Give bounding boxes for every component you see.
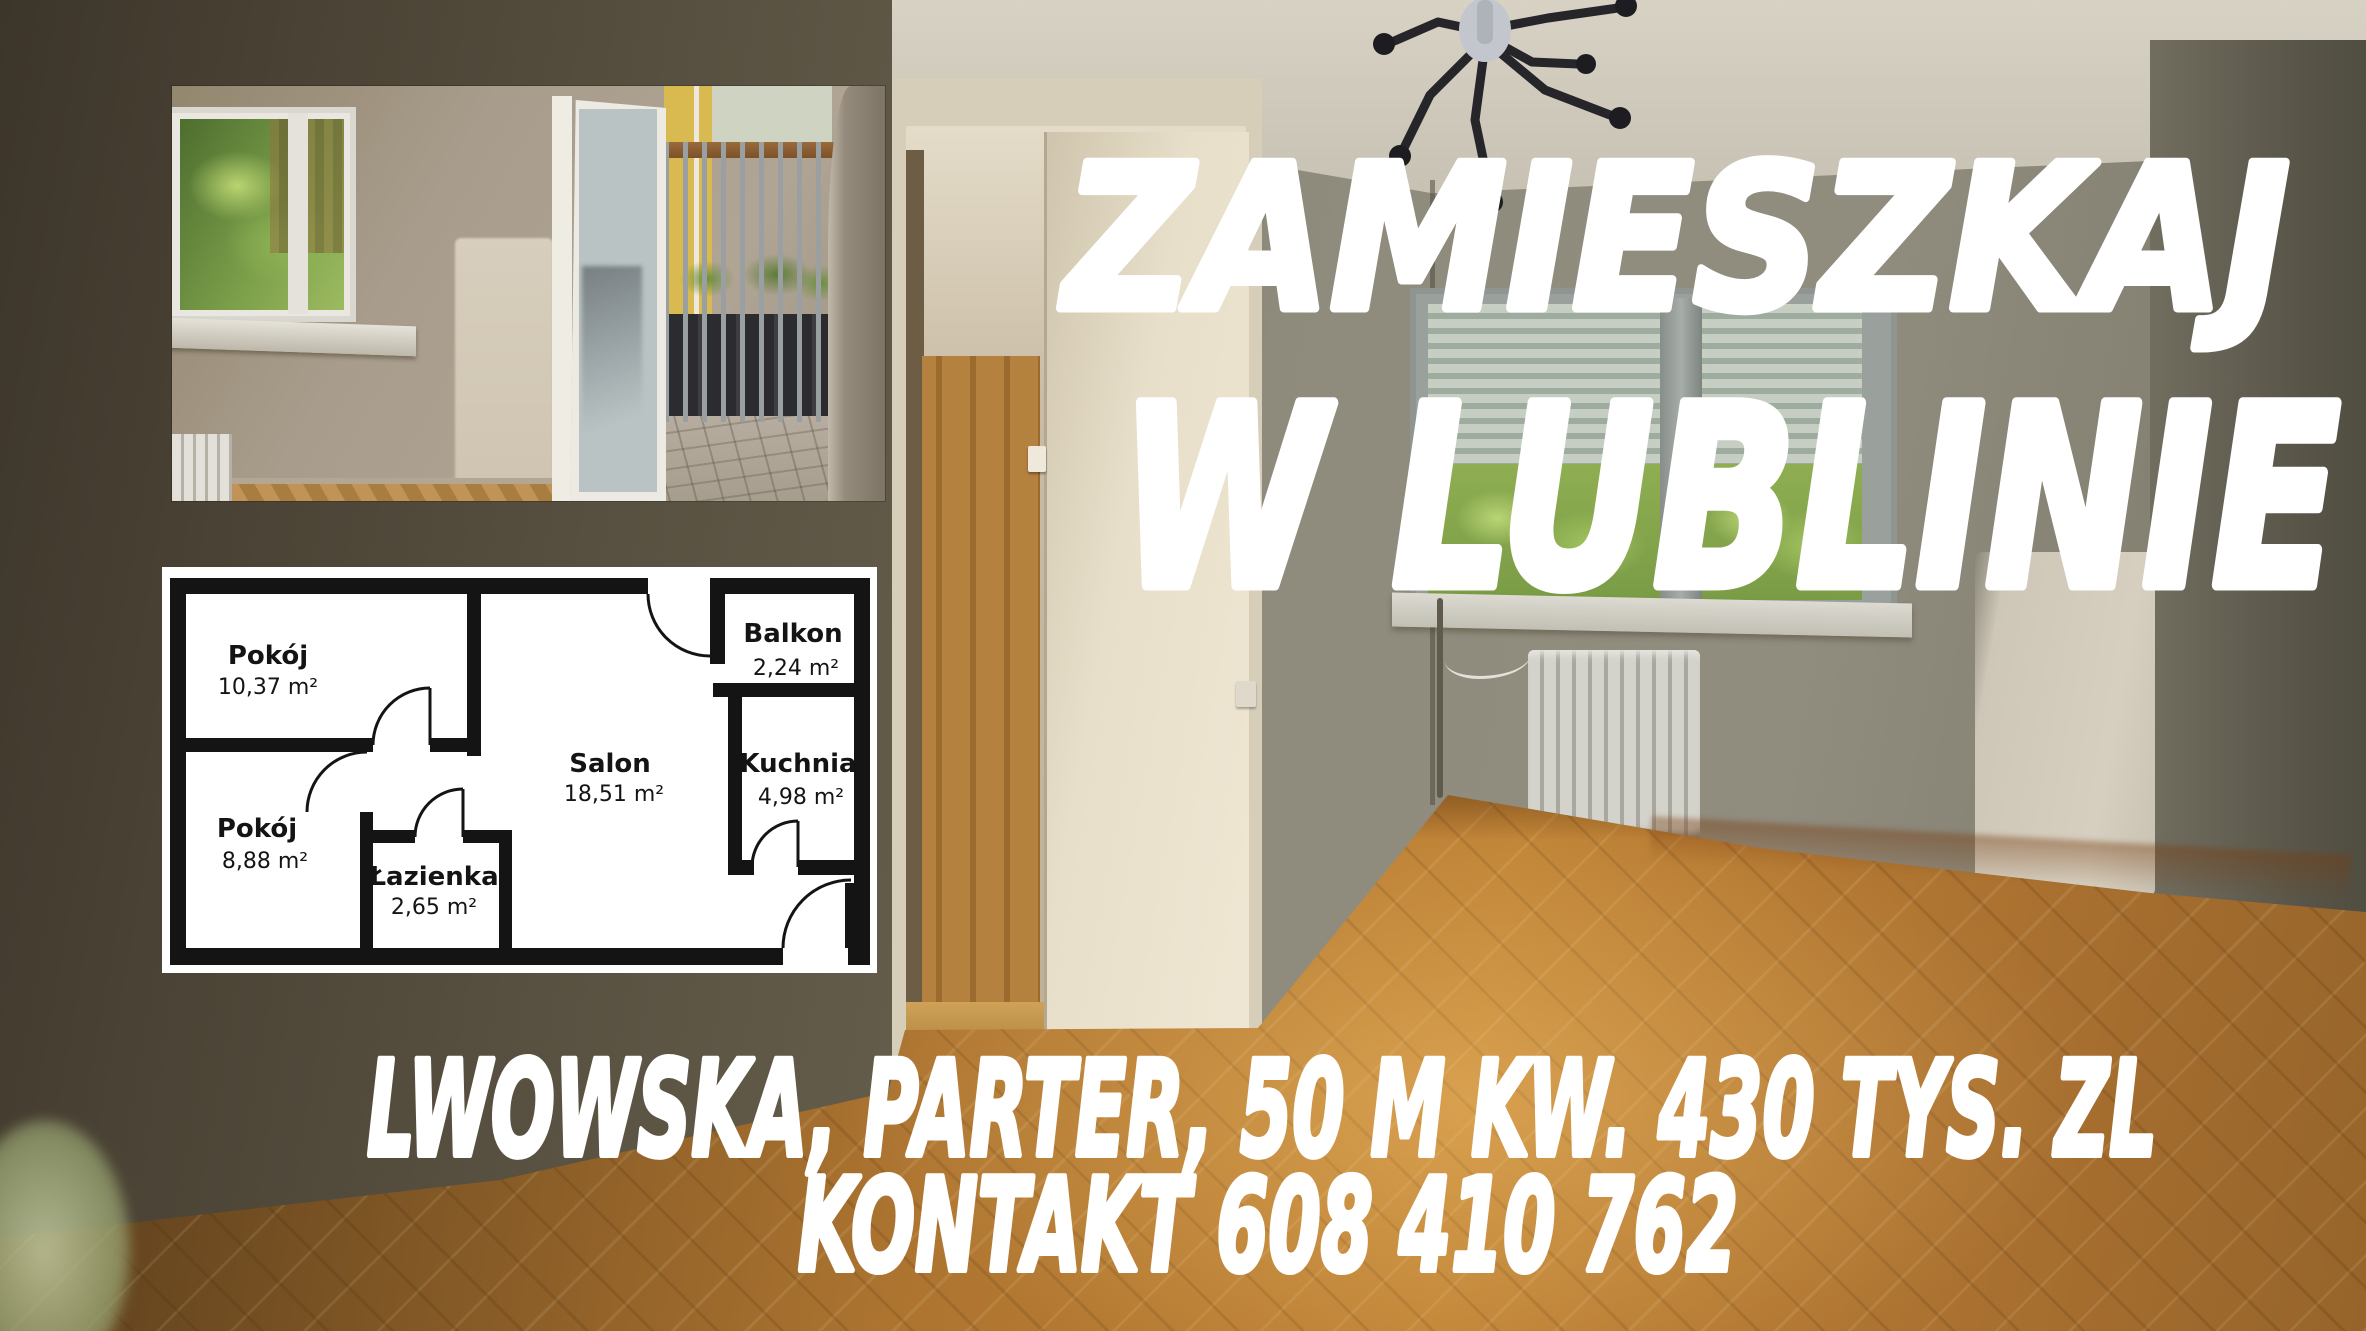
right-side-wall	[2150, 40, 2366, 925]
room-area: 10,37 m²	[218, 675, 318, 700]
room-label: Salon	[569, 749, 651, 779]
room-label: Pokój	[217, 814, 297, 844]
room-area: 4,98 m²	[758, 785, 844, 810]
window-mullion	[1660, 298, 1702, 606]
ceiling-lamp-icon	[1280, 0, 1660, 260]
window-greenery	[1702, 464, 1862, 600]
door-glass-reflection	[582, 266, 642, 486]
window-pane-right	[1702, 304, 1862, 600]
balcony-door-jamb	[552, 96, 572, 501]
power-outlet	[1236, 681, 1256, 707]
room-area: 2,24 m²	[753, 656, 839, 681]
room-label: Balkon	[743, 619, 842, 649]
window-pane-left	[1428, 304, 1660, 600]
room-area: 18,51 m²	[564, 782, 664, 807]
inset-right-wall	[828, 86, 885, 501]
light-switch	[1028, 446, 1046, 472]
open-door	[1044, 132, 1249, 1062]
inset-window-greenery	[180, 119, 344, 310]
inset-window-sill	[172, 318, 416, 357]
room-area: 8,88 m²	[222, 849, 308, 874]
inset-radiator	[172, 434, 232, 501]
room-label: Pokój	[228, 641, 308, 671]
room-window	[1410, 288, 1897, 620]
poster: Pokój 10,37 m² Pokój 8,88 m² Łazienka 2,…	[0, 0, 2366, 1331]
room-label: Kuchnia	[739, 749, 856, 779]
balcony-railing-bars	[664, 142, 838, 422]
balcony-tiles	[642, 416, 838, 501]
window-blinds	[1702, 304, 1862, 470]
inset-window	[172, 107, 356, 322]
window-greenery	[1428, 464, 1660, 600]
radiator	[1528, 650, 1700, 840]
heating-pipe	[1437, 598, 1443, 798]
room-area: 2,65 m²	[391, 895, 477, 920]
floor-plan: Pokój 10,37 m² Pokój 8,88 m² Łazienka 2,…	[162, 567, 877, 973]
window-blinds	[1428, 304, 1660, 470]
inset-photo	[172, 86, 885, 501]
inset-window-casement	[288, 113, 308, 314]
inset-wall-patch	[455, 238, 553, 501]
hallway-wardrobe	[922, 356, 1040, 1008]
room-label: Łazienka	[367, 862, 498, 892]
